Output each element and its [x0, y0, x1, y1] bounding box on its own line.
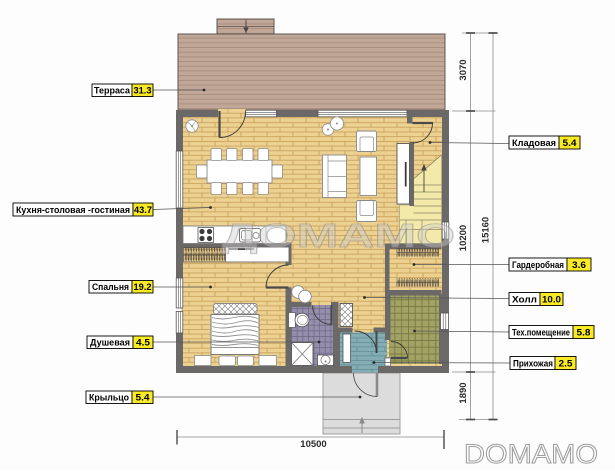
svg-text:5.4: 5.4: [136, 393, 151, 404]
svg-text:Спальня: Спальня: [92, 282, 129, 293]
svg-text:Кухня-столовая -гостиная: Кухня-столовая -гостиная: [16, 205, 130, 216]
svg-text:4.5: 4.5: [136, 338, 151, 349]
svg-text:Прихожая: Прихожая: [513, 358, 553, 369]
svg-text:Холл: Холл: [512, 294, 537, 305]
svg-text:Кладовая: Кладовая: [512, 138, 556, 149]
svg-text:43.7: 43.7: [134, 205, 152, 216]
svg-text:3070: 3070: [458, 59, 469, 80]
svg-text:DOMAMO: DOMAMO: [464, 439, 598, 469]
svg-text:10500: 10500: [300, 439, 326, 450]
svg-text:2.5: 2.5: [559, 358, 574, 369]
svg-text:Душевая: Душевая: [90, 338, 130, 349]
svg-text:Крыльцо: Крыльцо: [89, 393, 129, 404]
svg-text:Терраса: Терраса: [94, 86, 131, 97]
svg-text:5.8: 5.8: [577, 327, 592, 338]
svg-text:31.3: 31.3: [134, 86, 152, 97]
svg-text:3.6: 3.6: [572, 260, 586, 271]
svg-text:10.0: 10.0: [542, 294, 561, 305]
svg-text:Тех.помещение: Тех.помещение: [512, 327, 570, 338]
svg-text:15160: 15160: [481, 217, 492, 243]
svg-text:ДОМАМО: ДОМАМО: [222, 217, 455, 254]
svg-text:Гардеробная: Гардеробная: [512, 260, 564, 271]
svg-text:1890: 1890: [458, 382, 469, 403]
svg-text:5.4: 5.4: [563, 138, 578, 149]
svg-text:10200: 10200: [458, 225, 469, 251]
svg-text:19.2: 19.2: [134, 282, 152, 293]
